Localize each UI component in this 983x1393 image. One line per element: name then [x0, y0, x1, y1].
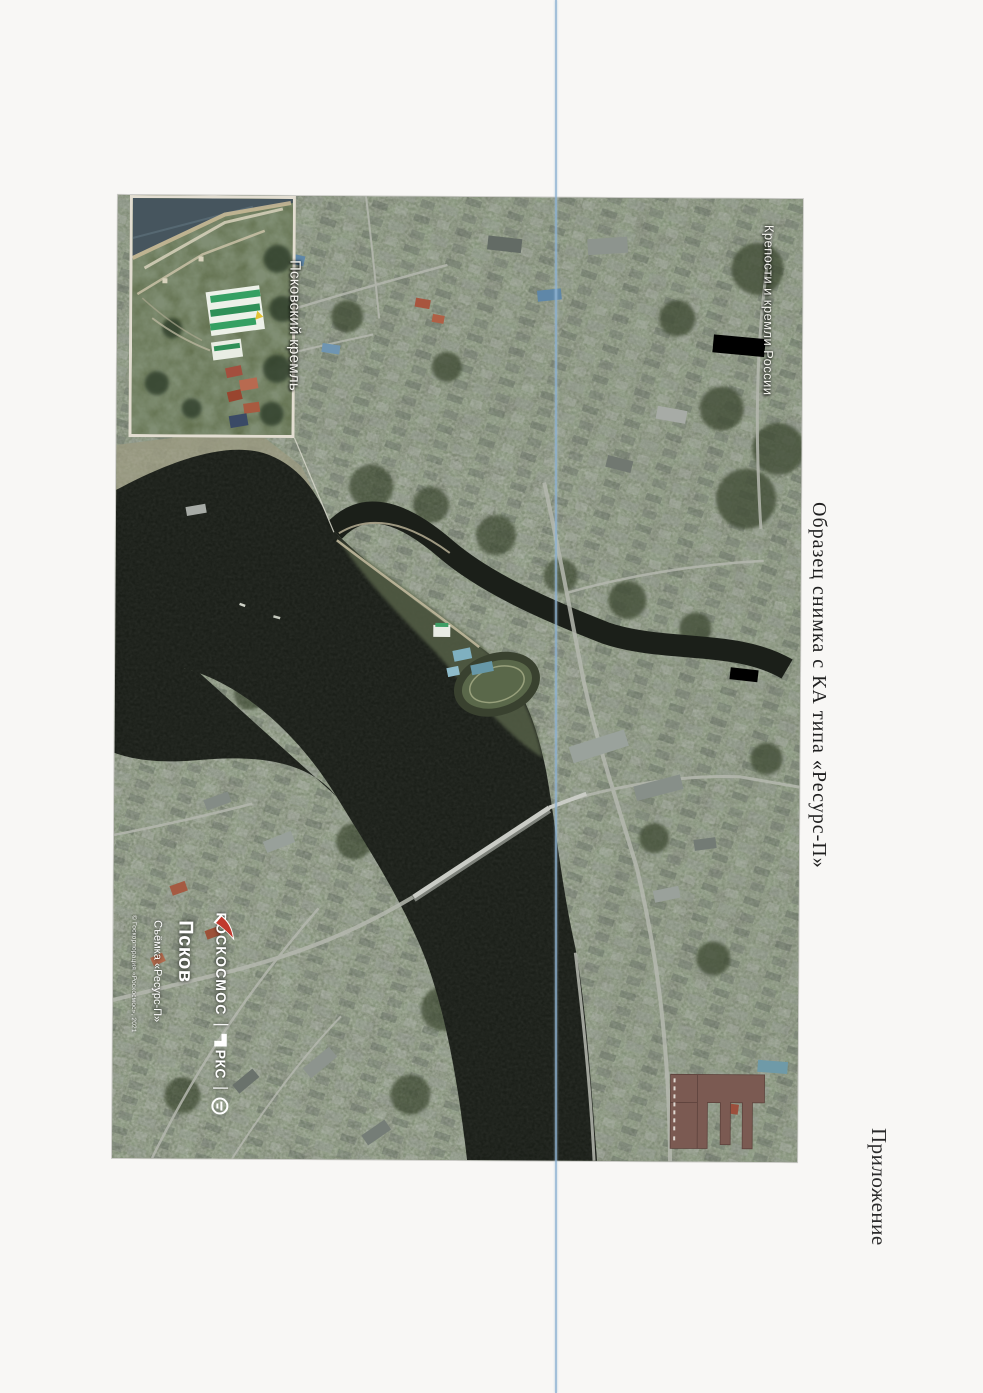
logo-row: РОСКОСМОС | РКС |: [205, 912, 236, 1114]
page-title: Образец снимка с КА типа «Ресурс-П»: [807, 502, 830, 869]
separator: |: [211, 1086, 229, 1090]
rks-label: РКС: [213, 1050, 229, 1079]
imagery-caption: Съёмка «Ресурс-П»: [151, 920, 164, 1022]
map-label-kremlin: Псковский кремль: [286, 260, 304, 391]
rks-logo-icon: [214, 1034, 227, 1047]
roscosmos-swoosh-icon: [210, 912, 236, 942]
scanned-page: { "page": { "title": "Образец снимка с К…: [0, 0, 983, 1393]
kremlin-inset-photo: [128, 195, 295, 438]
map-label-series: Крепости и кремли России: [761, 225, 777, 396]
rks-wordmark: РКС: [213, 1034, 229, 1079]
satellite-image: Крепости и кремли России Псковский кремл…: [112, 195, 803, 1162]
emblem-circle-icon: [212, 1097, 229, 1114]
separator: |: [212, 1022, 230, 1026]
appendix-label: Приложение: [866, 1128, 891, 1246]
copyright-line: © Госкорпорация «Роскосмос», 2021: [130, 915, 138, 1033]
city-name: Псков: [173, 920, 196, 982]
watermark: РОСКОСМОС | РКС | Псков Съёмка «Ресурс-П…: [122, 908, 238, 1144]
inset-photo-graphic: [131, 198, 292, 435]
